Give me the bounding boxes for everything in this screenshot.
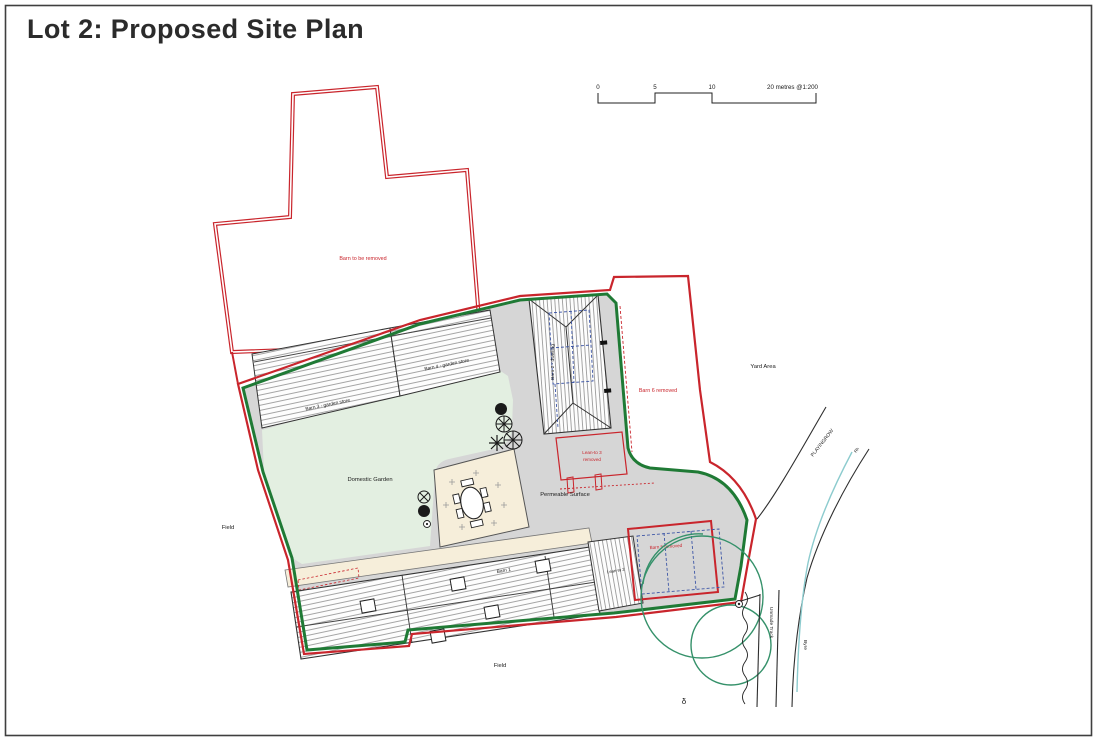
leanto3-label-2: removed — [583, 457, 601, 462]
barn-to-be-removed: Barn to be removed — [215, 87, 481, 352]
survey-marker-glyph: δ — [682, 697, 687, 706]
boundary-connector — [232, 352, 238, 384]
barn2-label: Barn 2 - dwelling — [550, 344, 556, 380]
shrub-icon — [495, 403, 507, 415]
barn2: Barn 2 - dwelling — [529, 295, 611, 434]
field-bottom-label: Field — [494, 663, 507, 669]
site-plan-drawing: 0 5 10 20 metres @1:200 Barn to be remov… — [0, 0, 1097, 741]
yard-area-label: Yard Area — [750, 364, 776, 370]
shrub-icon — [418, 505, 430, 517]
permeable-surface-label: Permeable Surface — [540, 492, 590, 498]
road-lines — [741, 407, 869, 707]
scale-tick-0: 0 — [596, 84, 600, 91]
gate-post-dot — [738, 603, 740, 605]
tree-icon — [504, 431, 522, 449]
garden-feature-dot — [426, 523, 428, 525]
tree-icon — [496, 416, 512, 432]
domestic-garden-label: Domestic Garden — [347, 477, 392, 483]
scale-tick-10: 10 — [709, 84, 716, 91]
byre-label: Byre — [802, 640, 808, 650]
road-name-label: PLAYINGROW — [810, 428, 836, 458]
scale-caption: 20 metres @1:200 — [767, 84, 819, 91]
scale-bar-line — [598, 93, 816, 103]
leanto3-label-1: Lean-to 3 — [582, 450, 602, 455]
unmade-track-label: Unmade Track — [768, 607, 774, 639]
scale-tick-5: 5 — [653, 84, 657, 91]
field-left-label: Field — [222, 525, 235, 531]
site-plan-page: Lot 2: Proposed Site Plan 0 5 10 20 m — [0, 0, 1097, 741]
plant-icon — [489, 435, 505, 451]
barn-to-be-removed-label: Barn to be removed — [339, 256, 386, 262]
barn2-door-marker — [600, 340, 607, 345]
stream-line — [797, 452, 852, 692]
barn2-door-marker — [604, 388, 611, 393]
scale-bar: 0 5 10 20 metres @1:200 — [596, 84, 818, 103]
barn6-label: Barn 6 removed — [639, 388, 677, 394]
road-small-label: Rh — [853, 446, 861, 454]
